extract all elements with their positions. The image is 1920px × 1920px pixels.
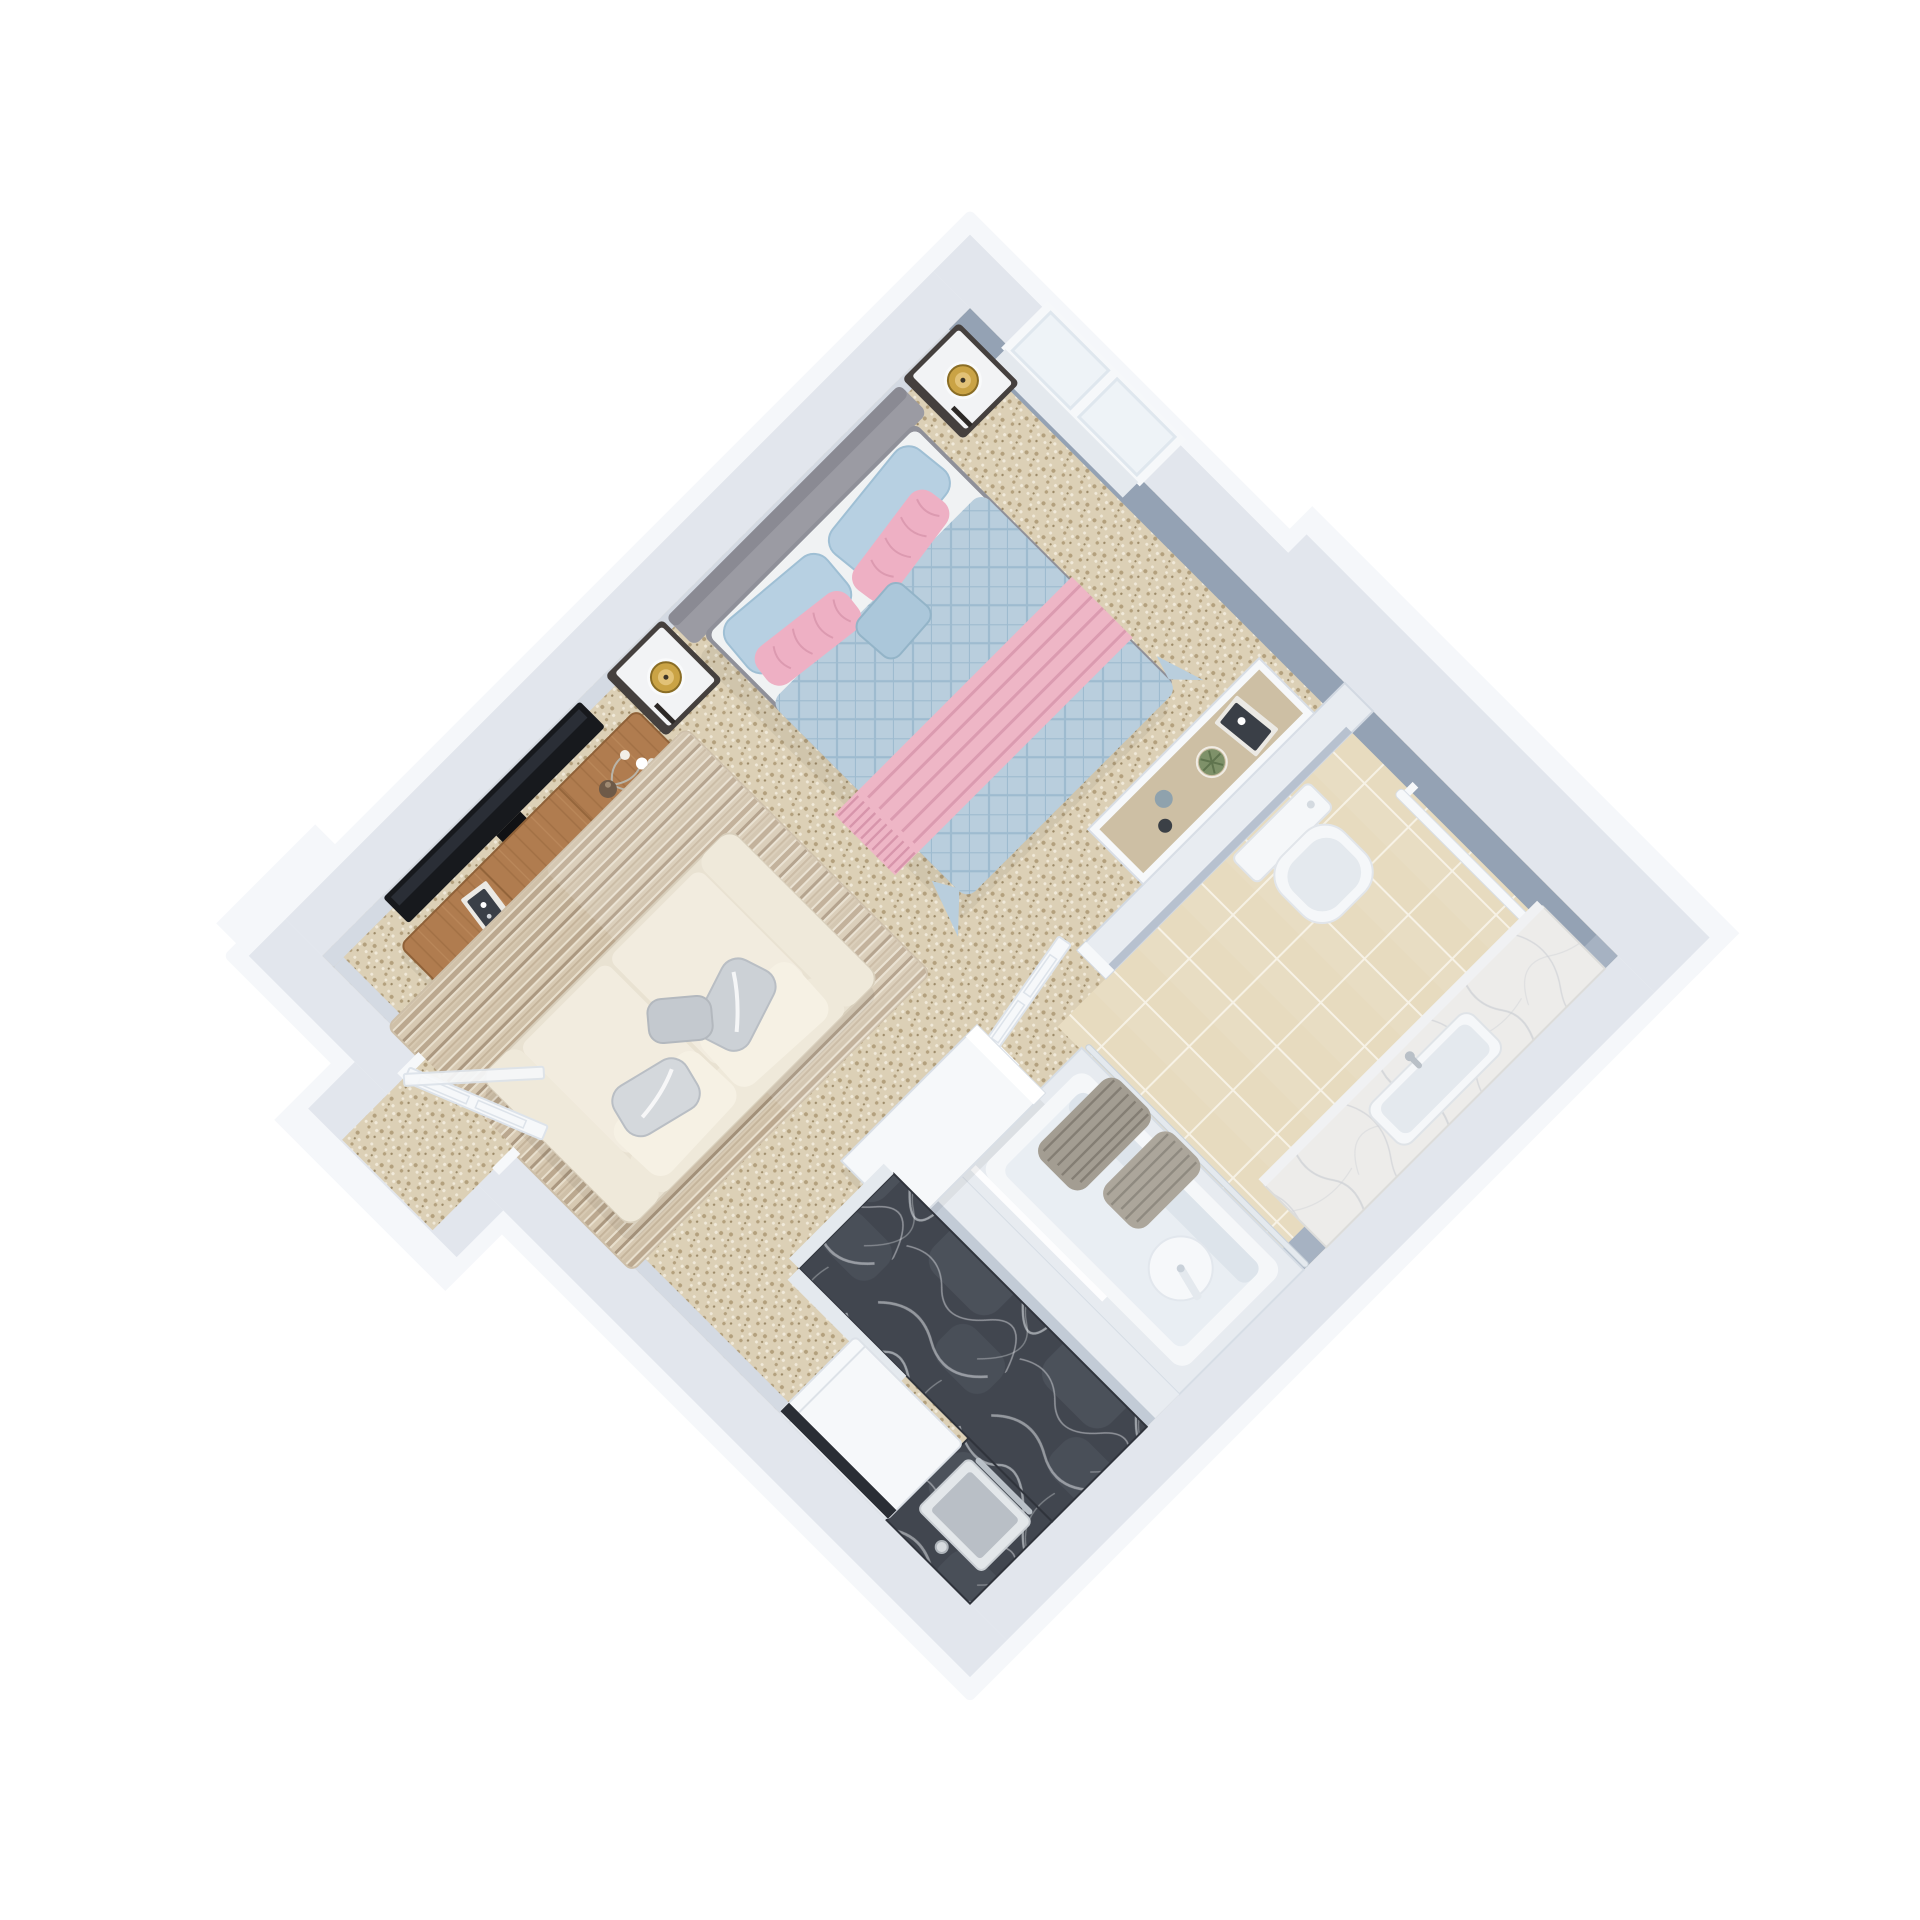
sofa-silver-pillow-small <box>646 995 714 1044</box>
floor-plan-svg <box>0 0 1920 1920</box>
rotated-plan <box>147 167 1739 1759</box>
floor-plan-render <box>0 0 1920 1920</box>
